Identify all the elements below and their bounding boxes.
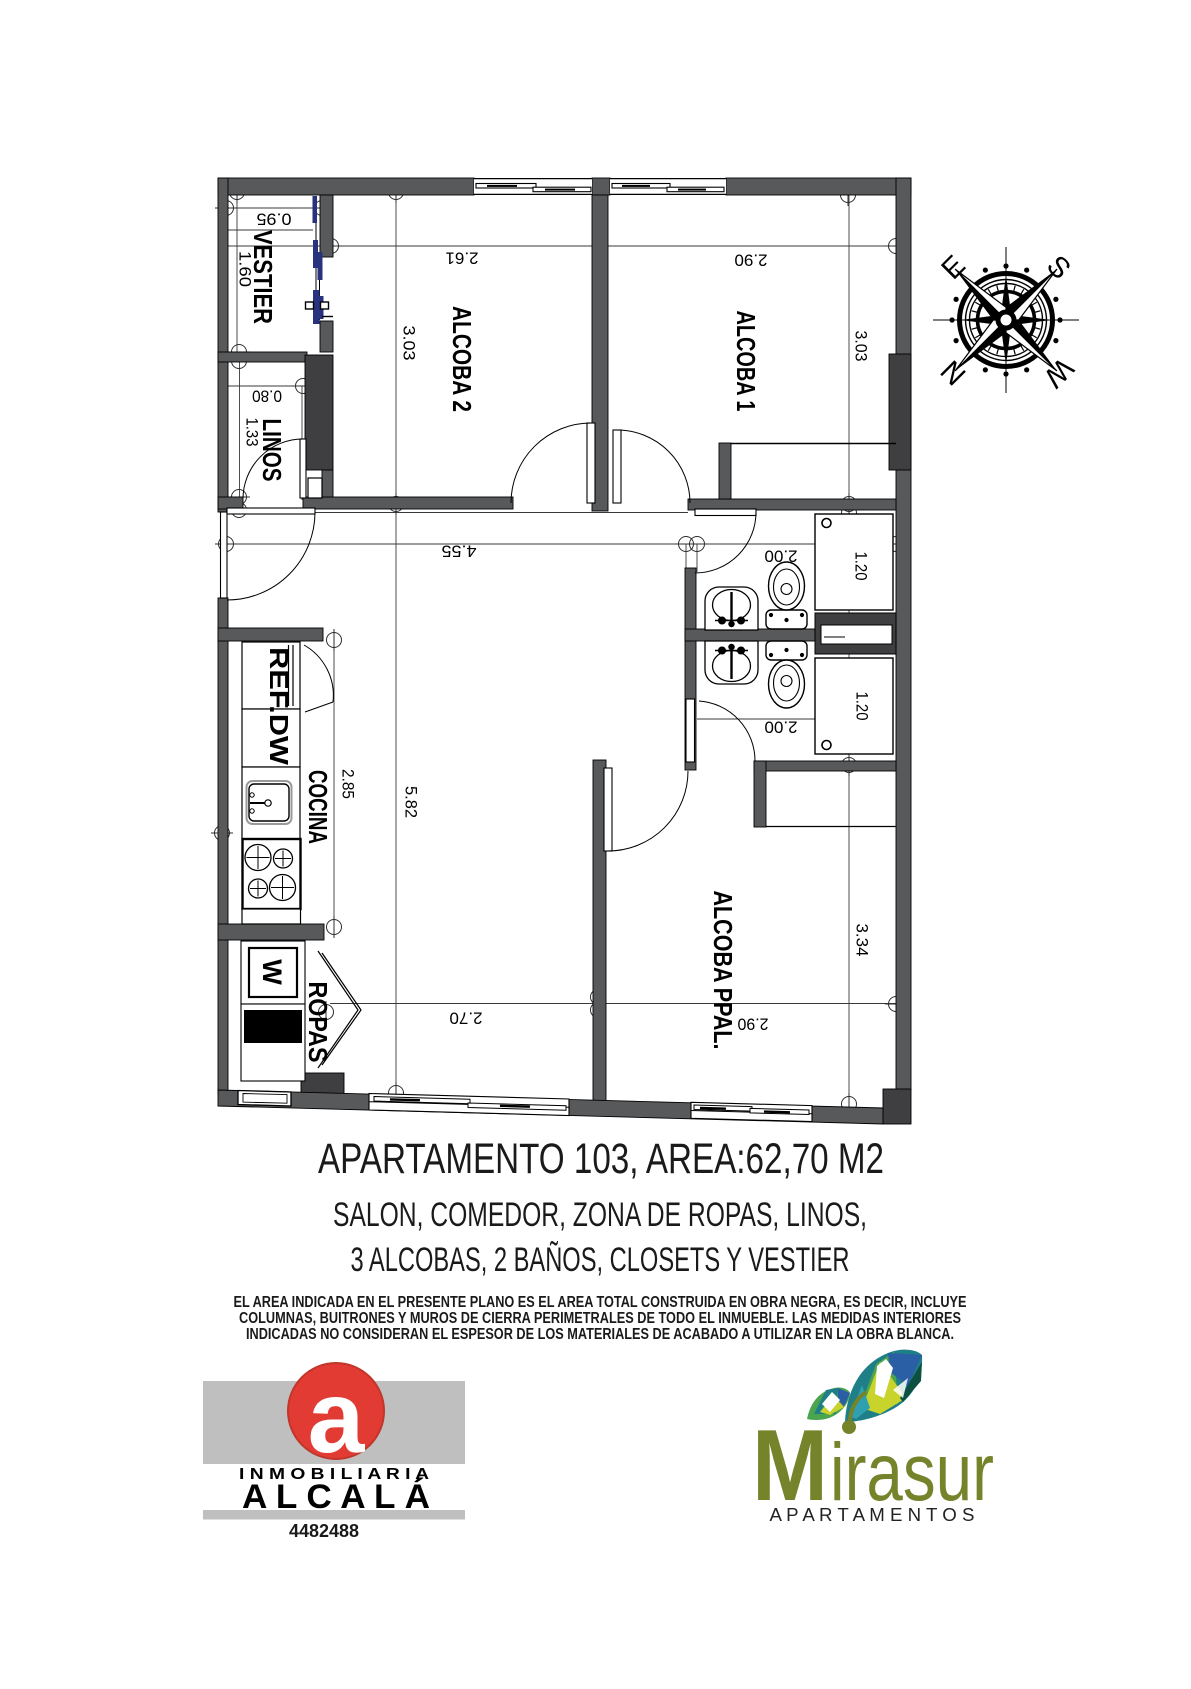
svg-text:3 ALCOBAS, 2 BAÑOS, CLOSETS Y: 3 ALCOBAS, 2 BAÑOS, CLOSETS Y VESTIER [351, 1241, 850, 1279]
svg-text:ROPAS: ROPAS [303, 982, 331, 1063]
svg-text:1.60: 1.60 [236, 251, 255, 287]
svg-text:4482488: 4482488 [289, 1521, 359, 1541]
svg-text:A L C A L Á: A L C A L Á [242, 1478, 430, 1516]
svg-text:APARTAMENTO 103, AREA:62,70 M2: APARTAMENTO 103, AREA:62,70 M2 [318, 1135, 884, 1183]
svg-text:2.00: 2.00 [765, 718, 798, 737]
svg-text:2.90: 2.90 [735, 251, 768, 270]
svg-text:5.82: 5.82 [402, 786, 421, 818]
svg-text:3.34: 3.34 [853, 924, 872, 957]
svg-text:2.85: 2.85 [339, 769, 358, 799]
svg-text:REF.DW: REF.DW [264, 647, 294, 766]
svg-text:1.20: 1.20 [853, 692, 872, 721]
svg-text:ALCOBA PPAL.: ALCOBA PPAL. [708, 891, 736, 1050]
svg-text:SALON, COMEDOR, ZONA DE ROPAS,: SALON, COMEDOR, ZONA DE ROPAS, LINOS, [333, 1196, 867, 1234]
svg-text:3.03: 3.03 [852, 331, 871, 362]
svg-text:1.33: 1.33 [243, 418, 262, 447]
svg-text:3.03: 3.03 [400, 326, 419, 361]
svg-text:a: a [308, 1360, 366, 1474]
svg-text:2.70: 2.70 [450, 1009, 483, 1028]
svg-text:2.90: 2.90 [738, 1015, 769, 1034]
svg-text:INDICADAS NO CONSIDERAN EL E: INDICADAS NO CONSIDERAN EL ESPESOR DE LO… [246, 1326, 954, 1343]
svg-text:EL AREA INDICADA EN EL PRESENT: EL AREA INDICADA EN EL PRESENTE PLANO ES… [234, 1294, 967, 1311]
svg-text:0.95: 0.95 [257, 210, 292, 229]
svg-text:ALCOBA 2: ALCOBA 2 [447, 306, 475, 412]
svg-text:ALCOBA 1: ALCOBA 1 [731, 311, 759, 412]
svg-text:W: W [257, 959, 287, 985]
svg-text:2.61: 2.61 [446, 249, 479, 268]
svg-text:4.55: 4.55 [442, 542, 477, 561]
svg-text:COCINA: COCINA [303, 770, 331, 844]
svg-text:COLUMNAS, BUITRONES Y MUROS DE: COLUMNAS, BUITRONES Y MUROS DE CIERRA PE… [239, 1310, 961, 1327]
svg-text:A P A R T A M E N T O S: A P A R T A M E N T O S [770, 1505, 975, 1525]
svg-text:2.00: 2.00 [765, 547, 798, 566]
svg-text:0.80: 0.80 [252, 387, 282, 406]
svg-text:1.20: 1.20 [852, 552, 871, 581]
